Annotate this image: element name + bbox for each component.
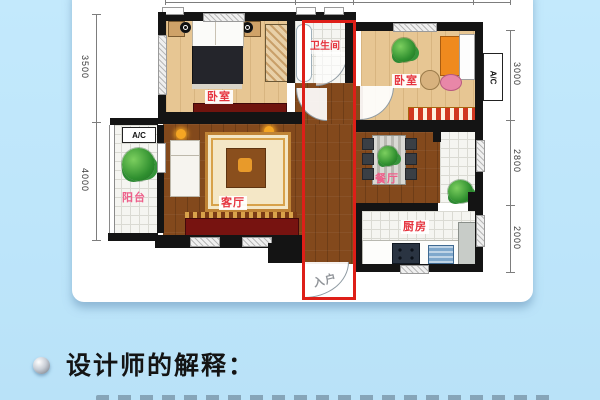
plant-icon [122,148,155,181]
plant-icon [378,146,398,166]
dim-tick [510,0,511,5]
window [476,215,485,247]
dishwasher [428,245,454,264]
window-sill [324,7,344,15]
page: 3500 4000 3000 2800 2000 [0,0,600,400]
dimension-label: 3000 [512,59,522,89]
wall [287,14,295,83]
ac-unit-right: A/C [483,53,503,101]
left-dimension-line [96,14,97,241]
room-label-balcony: 阳台 [120,191,148,205]
plant-icon [392,38,416,62]
orange-wardrobe [440,36,460,76]
wall [108,233,158,241]
window [393,23,437,32]
bed-foot [192,84,242,89]
window-sill [296,7,316,15]
ac-label: A/C [132,131,146,140]
dimension-label: 2000 [512,223,522,253]
window [476,140,485,172]
right-dimension-line [510,30,511,273]
wall [110,118,158,125]
wall [157,125,164,233]
window [190,237,220,247]
dimension-label: 4000 [80,165,90,195]
ceiling-lamp-icon [176,129,186,139]
wall [353,120,483,132]
wall [433,128,441,142]
dim-tick [353,0,354,5]
chair [405,153,417,165]
bed-pillow-divider [215,21,216,45]
window [158,35,167,95]
ac-unit-balcony: A/C [122,127,156,143]
highlight-rectangle [302,20,356,300]
chair [405,138,417,150]
cutoff-text-line [96,395,558,400]
window [400,265,429,274]
dim-cap [506,272,515,273]
room-label-bedroom-left: 卧室 [205,90,233,104]
dim-tick [295,0,296,5]
bullet-icon [33,357,50,374]
dim-cap [92,122,101,123]
dim-tick [473,0,474,5]
wardrobe [265,24,289,82]
round-table [420,70,440,90]
dim-tick [165,0,166,5]
bed-pillows [192,20,244,48]
balcony-railing [109,125,115,233]
chair [362,153,374,165]
dimension-label: 2800 [512,146,522,176]
window [203,13,245,22]
sofa-chaise [170,140,200,156]
chair [405,168,417,180]
room-label-dining: 餐厅 [373,172,401,186]
wall [158,112,303,124]
wall [353,203,438,211]
chair [362,138,374,150]
balcony-door-gap [157,143,166,173]
bed-blanket [192,46,243,84]
dim-cap [506,30,515,31]
table-decor [238,158,252,172]
bedside-lamp-icon [180,22,191,33]
caption-title: 设计师的解释： [66,346,255,382]
fridge [458,222,476,265]
sofa [170,155,200,197]
pink-chair [440,74,462,91]
dimension-label: 3500 [80,52,90,82]
room-label-kitchen: 厨房 [401,220,429,234]
dim-cap [506,120,515,121]
top-dimension-line [165,2,510,3]
dim-cap [92,240,101,241]
dim-cap [92,14,101,15]
room-label-living: 客厅 [219,196,247,210]
wall [268,243,305,263]
dim-cap [506,205,515,206]
stove [392,243,420,264]
shelf [459,34,475,80]
wall [475,22,483,122]
room-label-bedroom-right: 卧室 [392,74,420,88]
ac-label: A/C [489,70,498,84]
